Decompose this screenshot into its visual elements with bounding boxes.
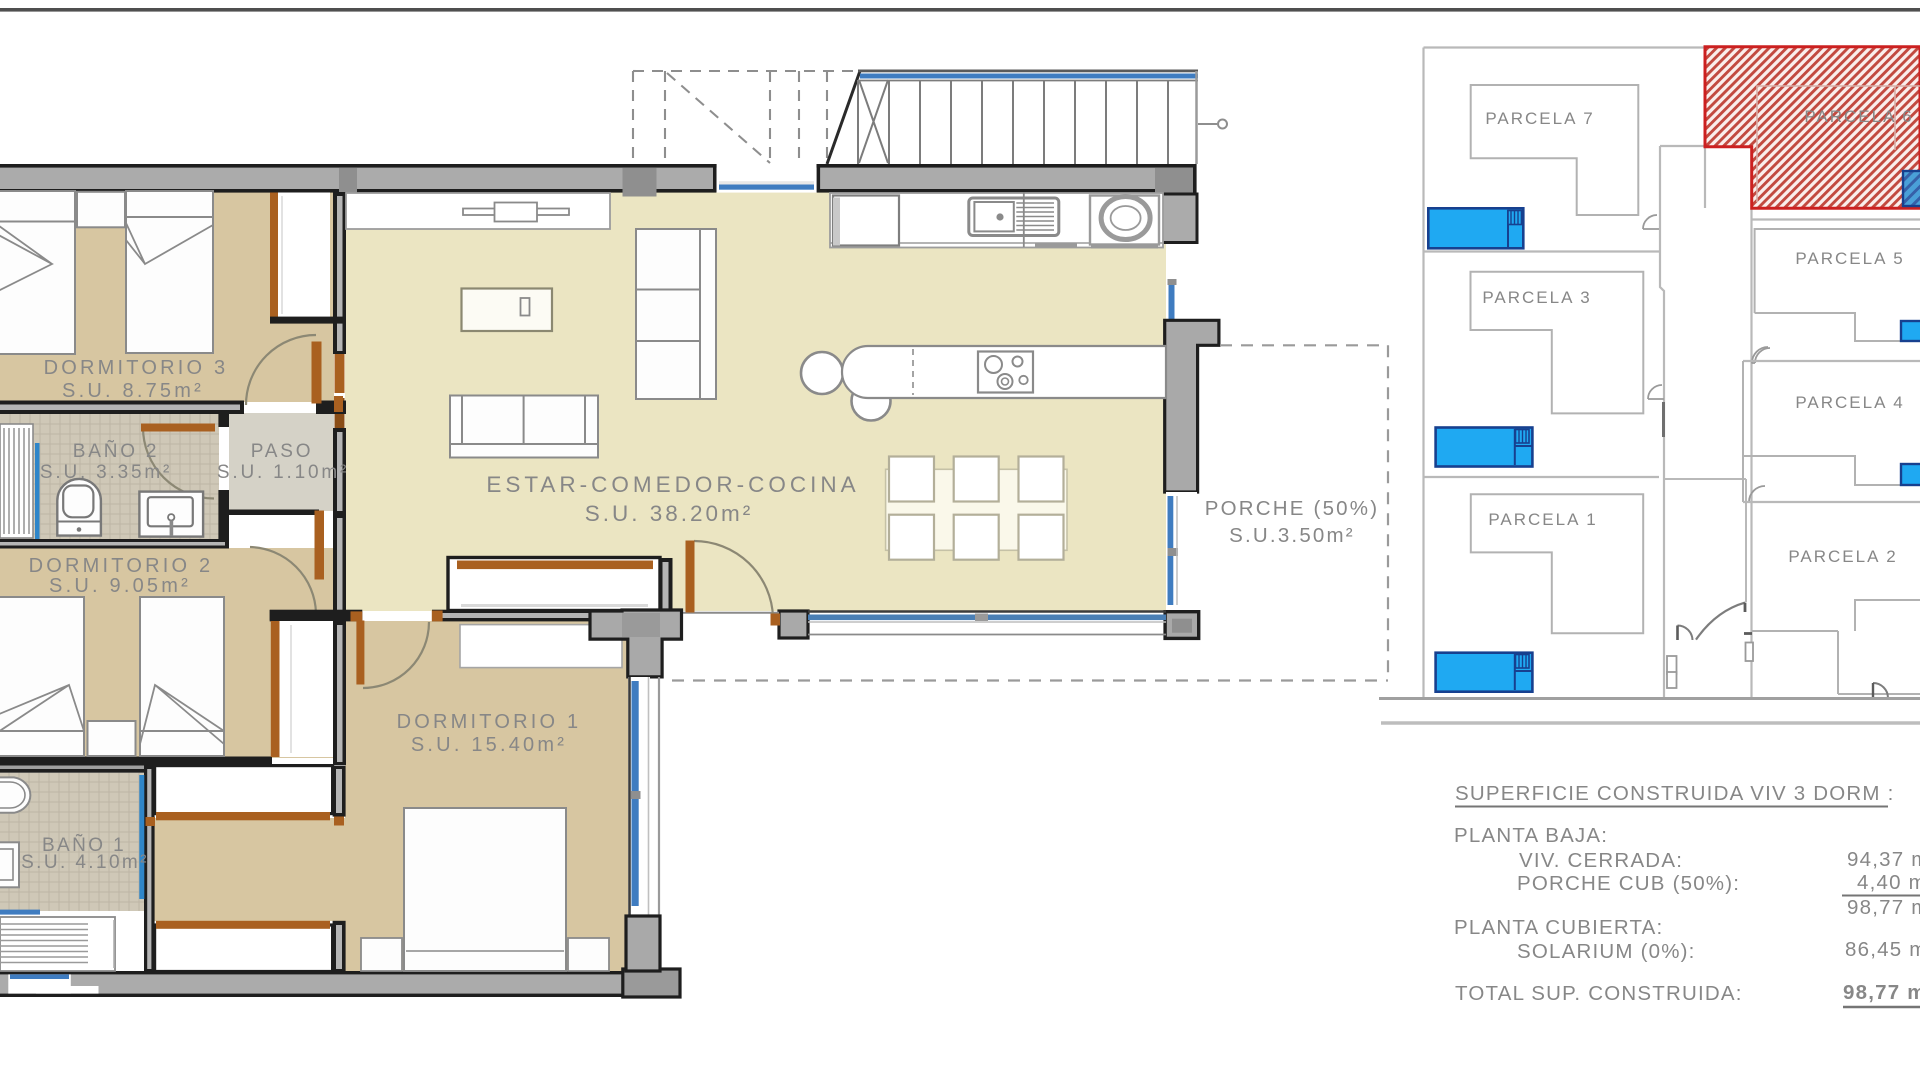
svg-text:BAÑO 2: BAÑO 2 <box>73 440 160 462</box>
svg-text:TOTAL SUP. CONSTRUIDA:: TOTAL SUP. CONSTRUIDA: <box>1455 982 1743 1005</box>
svg-text:ESTAR-COMEDOR-COCINA: ESTAR-COMEDOR-COCINA <box>486 472 859 497</box>
svg-text:SOLARIUM (0%):: SOLARIUM (0%): <box>1517 940 1696 963</box>
svg-text:PORCHE CUB (50%):: PORCHE CUB (50%): <box>1517 872 1740 895</box>
svg-text:S.U. 9.05m²: S.U. 9.05m² <box>49 575 191 597</box>
svg-text:PARCELA 3: PARCELA 3 <box>1482 288 1591 307</box>
svg-text:S.U. 4.10m²: S.U. 4.10m² <box>21 852 149 873</box>
svg-text:PARCELA 6: PARCELA 6 <box>1804 107 1913 126</box>
svg-text:VIV. CERRADA:: VIV. CERRADA: <box>1519 849 1683 872</box>
svg-text:S.U.3.50m²: S.U.3.50m² <box>1229 524 1355 547</box>
svg-text:PLANTA BAJA:: PLANTA BAJA: <box>1454 824 1608 847</box>
svg-text:PLANTA CUBIERTA:: PLANTA CUBIERTA: <box>1454 916 1663 939</box>
svg-text:94,37 m: 94,37 m <box>1847 848 1920 871</box>
svg-text:S.U. 3.35m²: S.U. 3.35m² <box>40 462 172 483</box>
svg-text:S.U. 15.40m²: S.U. 15.40m² <box>411 734 567 756</box>
svg-text:DORMITORIO 1: DORMITORIO 1 <box>397 711 582 733</box>
svg-text:SUPERFICIE CONSTRUIDA VIV 3 DO: SUPERFICIE CONSTRUIDA VIV 3 DORM : <box>1455 782 1894 805</box>
svg-text:PARCELA 7: PARCELA 7 <box>1485 109 1594 128</box>
svg-text:98,77 m: 98,77 m <box>1847 896 1920 919</box>
svg-text:DORMITORIO 2: DORMITORIO 2 <box>29 555 214 577</box>
svg-text:S.U. 38.20m²: S.U. 38.20m² <box>585 501 754 526</box>
svg-text:PARCELA 2: PARCELA 2 <box>1788 547 1897 566</box>
svg-text:PARCELA 5: PARCELA 5 <box>1795 249 1904 268</box>
svg-text:DORMITORIO 3: DORMITORIO 3 <box>44 357 229 379</box>
svg-text:PASO: PASO <box>251 441 314 462</box>
svg-text:98,77 m: 98,77 m <box>1843 981 1920 1004</box>
svg-text:PARCELA 4: PARCELA 4 <box>1795 393 1904 412</box>
svg-text:4,40 m: 4,40 m <box>1857 871 1920 894</box>
svg-text:86,45 m: 86,45 m <box>1845 938 1920 961</box>
svg-text:PORCHE (50%): PORCHE (50%) <box>1205 497 1380 520</box>
svg-text:S.U. 8.75m²: S.U. 8.75m² <box>62 380 204 402</box>
svg-text:S.U. 1.10m²: S.U. 1.10m² <box>217 462 349 483</box>
svg-text:PARCELA 1: PARCELA 1 <box>1488 510 1597 529</box>
